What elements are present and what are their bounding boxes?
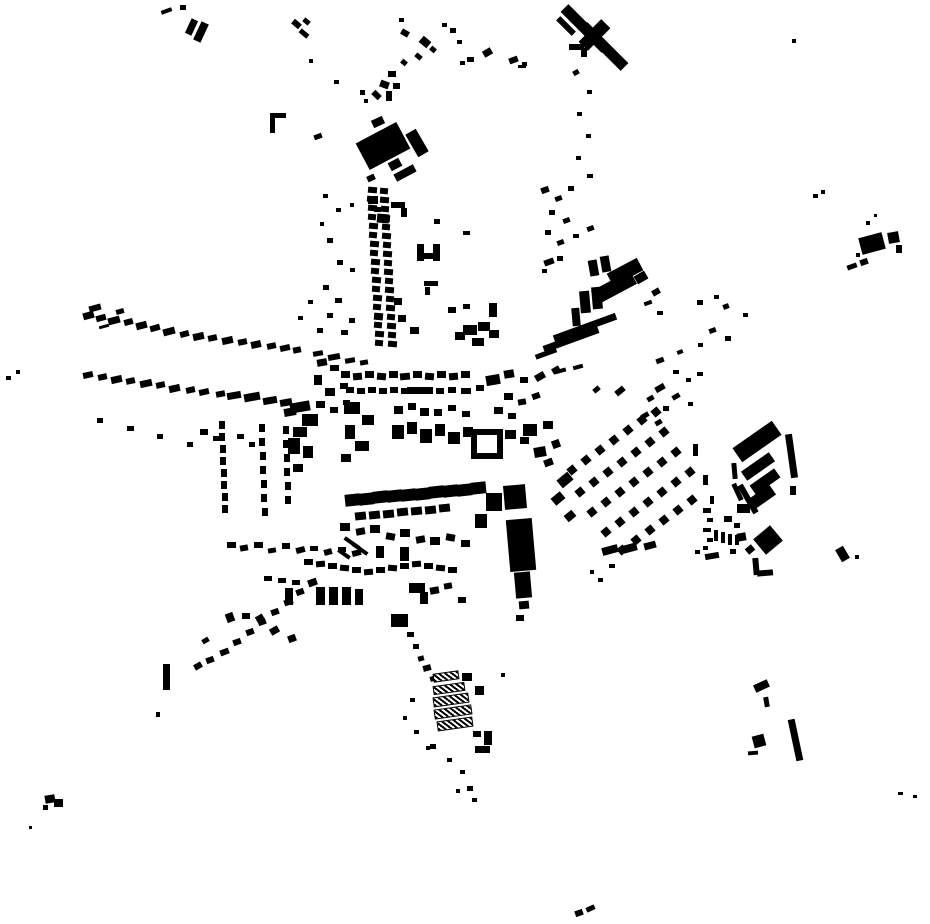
- building-footprint: [387, 565, 396, 572]
- building-footprint: [622, 542, 638, 553]
- building-footprint: [714, 295, 719, 299]
- building-footprint: [379, 197, 388, 204]
- building-footprint: [287, 633, 297, 642]
- building-footprint: [54, 799, 63, 807]
- building-footprint: [377, 213, 390, 223]
- building-footprint: [338, 547, 346, 552]
- building-footprint: [285, 482, 291, 490]
- building-footprint: [686, 378, 691, 382]
- building-footprint: [448, 387, 456, 393]
- building-footprint: [288, 438, 300, 454]
- building-footprint: [429, 45, 437, 53]
- building-footprint: [437, 371, 446, 378]
- building-footprint: [369, 232, 377, 239]
- building-footprint: [381, 233, 390, 240]
- building-footprint: [405, 129, 428, 158]
- building-footprint: [315, 561, 324, 568]
- building-footprint: [385, 305, 394, 312]
- building-footprint: [364, 99, 368, 103]
- building-footprint: [600, 496, 611, 507]
- building-footprint: [508, 413, 516, 419]
- building-footprint: [697, 372, 703, 376]
- building-footprint: [461, 388, 471, 394]
- building-footprint: [414, 730, 419, 734]
- building-footprint: [237, 338, 247, 346]
- building-footprint: [458, 597, 466, 603]
- building-footprint: [471, 429, 503, 459]
- building-footprint: [394, 298, 402, 305]
- building-footprint: [485, 374, 501, 386]
- building-footprint: [657, 311, 663, 315]
- building-footprint: [554, 194, 562, 201]
- building-footprint: [434, 671, 459, 681]
- building-footprint: [410, 327, 419, 334]
- building-footprint: [356, 122, 411, 170]
- building-footprint: [462, 411, 470, 417]
- building-footprint: [179, 330, 189, 338]
- building-footprint: [390, 387, 398, 393]
- building-footprint: [736, 532, 746, 541]
- building-footprint: [97, 373, 107, 381]
- building-footprint: [693, 444, 698, 456]
- building-footprint: [393, 83, 400, 89]
- building-footprint: [858, 232, 886, 255]
- building-footprint: [419, 36, 432, 49]
- building-footprint: [381, 206, 389, 213]
- building-footprint: [651, 287, 661, 296]
- building-footprint: [475, 686, 484, 695]
- building-footprint: [327, 313, 333, 318]
- building-footprint: [614, 486, 625, 497]
- building-footprint: [448, 372, 458, 380]
- building-footprint: [198, 388, 209, 396]
- building-footprint: [413, 371, 422, 378]
- building-footprint: [445, 533, 455, 541]
- building-footprint: [302, 414, 318, 426]
- building-footprint: [340, 523, 350, 531]
- building-footprint: [316, 401, 325, 408]
- building-footprint: [601, 544, 619, 556]
- building-footprint: [586, 506, 597, 517]
- building-footprint: [400, 372, 411, 380]
- building-footprint: [245, 628, 255, 636]
- building-footprint: [192, 331, 204, 340]
- building-footprint: [520, 377, 528, 383]
- building-footprint: [887, 231, 900, 244]
- building-footprint: [385, 532, 395, 540]
- building-footprint: [422, 664, 431, 672]
- building-footprint: [242, 613, 250, 619]
- building-footprint: [714, 530, 718, 541]
- building-footprint: [284, 454, 290, 462]
- building-footprint: [341, 330, 348, 335]
- building-footprint: [207, 334, 217, 342]
- building-footprint: [516, 615, 524, 621]
- building-footprint: [367, 205, 376, 212]
- building-footprint: [787, 719, 803, 762]
- building-footprint: [400, 547, 409, 561]
- building-footprint: [352, 372, 362, 380]
- building-footprint: [522, 62, 527, 66]
- building-footprint: [686, 494, 697, 505]
- building-footprint: [232, 638, 242, 646]
- building-footprint: [592, 385, 601, 393]
- building-footprint: [201, 636, 210, 644]
- building-footprint: [725, 336, 731, 341]
- building-footprint: [344, 402, 360, 414]
- building-footprint: [856, 253, 860, 257]
- building-footprint: [429, 586, 439, 594]
- building-footprint: [424, 563, 433, 569]
- building-footprint: [264, 576, 272, 581]
- building-footprint: [505, 430, 516, 439]
- building-footprint: [371, 277, 380, 284]
- building-footprint: [574, 909, 584, 917]
- building-footprint: [193, 661, 203, 670]
- building-footprint: [379, 79, 390, 89]
- building-footprint: [382, 509, 394, 518]
- building-footprint: [386, 91, 392, 101]
- building-footprint: [384, 287, 393, 294]
- building-footprint: [846, 262, 857, 270]
- building-footprint: [737, 504, 750, 513]
- building-footprint: [243, 392, 260, 403]
- building-footprint: [456, 789, 460, 793]
- building-footprint: [360, 90, 365, 95]
- building-footprint: [543, 257, 554, 266]
- building-footprint: [571, 308, 581, 327]
- building-footprint: [732, 420, 781, 461]
- building-footprint: [475, 746, 490, 753]
- building-footprint: [386, 323, 395, 330]
- building-footprint: [329, 587, 338, 605]
- building-footprint: [602, 466, 613, 477]
- building-footprint: [372, 295, 381, 302]
- building-footprint: [622, 424, 633, 435]
- building-footprint: [367, 187, 376, 194]
- building-footprint: [379, 388, 387, 394]
- building-footprint: [400, 563, 409, 569]
- building-footprint: [551, 491, 566, 506]
- building-footprint: [481, 47, 492, 58]
- building-footprint: [270, 116, 275, 133]
- building-footprint: [821, 190, 825, 194]
- building-footprint: [398, 315, 406, 322]
- building-footprint: [467, 57, 474, 62]
- building-footprint: [688, 402, 693, 406]
- building-footprint: [734, 523, 740, 528]
- building-footprint: [444, 582, 453, 589]
- building-footprint: [628, 506, 639, 517]
- building-footprint: [82, 371, 93, 379]
- building-footprint: [434, 409, 442, 416]
- building-footprint: [630, 446, 641, 457]
- building-footprint: [501, 673, 505, 677]
- building-footprint: [585, 904, 595, 912]
- building-footprint: [472, 798, 477, 802]
- building-footprint: [320, 222, 324, 226]
- building-footprint: [707, 538, 713, 542]
- building-footprint: [644, 524, 655, 535]
- building-footprint: [608, 434, 619, 445]
- building-footprint: [410, 698, 415, 702]
- building-footprint: [341, 371, 350, 378]
- building-footprint: [591, 287, 603, 310]
- building-footprint: [115, 308, 124, 315]
- building-footprint: [110, 374, 122, 383]
- building-footprint: [295, 546, 305, 554]
- building-footprint: [461, 540, 470, 547]
- building-footprint: [268, 547, 277, 553]
- building-footprint: [368, 223, 377, 230]
- building-footprint: [160, 7, 172, 15]
- building-footprint: [594, 444, 605, 455]
- building-footprint: [752, 734, 767, 749]
- building-footprint: [703, 546, 708, 550]
- building-footprint: [157, 434, 163, 439]
- building-footprint: [731, 463, 737, 479]
- building-footprint: [599, 255, 611, 272]
- building-footprint: [663, 406, 669, 411]
- building-footprint: [127, 426, 134, 431]
- building-footprint: [448, 405, 456, 411]
- building-footprint: [670, 476, 681, 487]
- building-footprint: [367, 196, 375, 203]
- building-footprint: [327, 238, 333, 243]
- building-footprint: [790, 486, 796, 495]
- building-footprint: [341, 454, 351, 462]
- building-footprint: [514, 571, 532, 598]
- building-footprint: [408, 403, 416, 410]
- building-footprint: [644, 300, 653, 306]
- building-footprint: [283, 440, 289, 448]
- building-footprint: [545, 230, 551, 235]
- building-footprint: [220, 457, 226, 465]
- building-footprint: [531, 392, 541, 400]
- building-footprint: [95, 314, 106, 322]
- building-footprint: [426, 746, 430, 750]
- building-footprint: [417, 655, 424, 661]
- building-footprint: [213, 436, 220, 441]
- buildings-layer: [0, 0, 930, 924]
- building-footprint: [705, 552, 720, 560]
- building-footprint: [579, 291, 591, 314]
- building-footprint: [283, 407, 296, 417]
- building-footprint: [695, 550, 700, 554]
- building-footprint: [316, 587, 325, 605]
- building-footprint: [16, 370, 20, 374]
- building-footprint: [219, 421, 225, 429]
- building-footprint: [590, 570, 594, 574]
- building-footprint: [254, 542, 263, 548]
- building-footprint: [337, 260, 343, 265]
- building-footprint: [672, 504, 683, 515]
- building-footprint: [435, 706, 472, 719]
- building-footprint: [407, 387, 433, 394]
- building-footprint: [268, 625, 279, 636]
- building-footprint: [266, 342, 276, 350]
- building-footprint: [434, 219, 440, 224]
- building-footprint: [436, 388, 444, 394]
- building-footprint: [355, 589, 363, 605]
- building-footprint: [410, 506, 422, 515]
- building-footprint: [200, 429, 208, 435]
- building-footprint: [163, 664, 170, 690]
- building-footprint: [654, 418, 663, 426]
- building-footprint: [400, 28, 410, 37]
- building-footprint: [328, 563, 337, 569]
- building-footprint: [260, 452, 266, 460]
- building-footprint: [430, 537, 440, 545]
- building-footprint: [616, 456, 627, 467]
- building-footprint: [219, 648, 230, 657]
- building-footprint: [745, 544, 756, 555]
- building-footprint: [411, 561, 420, 568]
- building-footprint: [387, 314, 395, 321]
- building-footprint: [724, 516, 732, 522]
- building-footprint: [448, 307, 456, 313]
- building-footprint: [375, 340, 383, 347]
- building-footprint: [295, 588, 305, 596]
- building-footprint: [646, 394, 655, 402]
- building-footprint: [518, 398, 527, 405]
- building-footprint: [291, 19, 302, 29]
- building-footprint: [433, 244, 440, 261]
- figure-ground-map: [0, 0, 930, 924]
- building-footprint: [391, 614, 408, 627]
- building-footprint: [813, 194, 818, 198]
- building-footprint: [506, 518, 536, 572]
- building-footprint: [307, 577, 318, 587]
- building-footprint: [302, 17, 311, 25]
- building-footprint: [376, 372, 386, 380]
- building-footprint: [707, 518, 713, 522]
- building-footprint: [721, 532, 725, 543]
- building-footprint: [293, 464, 303, 472]
- building-footprint: [874, 214, 877, 217]
- building-footprint: [362, 415, 374, 425]
- building-footprint: [226, 390, 241, 399]
- building-footprint: [473, 731, 481, 737]
- building-footprint: [371, 116, 385, 128]
- building-footprint: [489, 330, 499, 338]
- building-footprint: [342, 587, 351, 605]
- building-footprint: [463, 231, 470, 235]
- building-footprint: [753, 525, 783, 554]
- building-footprint: [371, 268, 379, 275]
- building-footprint: [261, 494, 267, 502]
- building-footprint: [614, 385, 626, 396]
- building-footprint: [336, 208, 341, 212]
- building-footprint: [855, 555, 859, 559]
- building-footprint: [349, 318, 355, 323]
- building-footprint: [461, 371, 470, 378]
- building-footprint: [250, 340, 261, 349]
- building-footprint: [293, 427, 307, 437]
- building-footprint: [859, 258, 869, 266]
- building-footprint: [420, 592, 428, 604]
- building-footprint: [278, 578, 286, 583]
- building-footprint: [642, 466, 653, 477]
- building-footprint: [259, 438, 265, 446]
- building-footprint: [330, 407, 338, 413]
- building-footprint: [564, 510, 577, 523]
- building-footprint: [149, 324, 160, 332]
- building-footprint: [313, 350, 324, 357]
- building-footprint: [684, 466, 695, 477]
- building-footprint: [282, 543, 290, 549]
- building-footprint: [366, 174, 376, 183]
- building-footprint: [373, 312, 383, 320]
- building-footprint: [534, 370, 546, 381]
- building-footprint: [472, 338, 484, 346]
- building-footprint: [222, 505, 228, 513]
- building-footprint: [703, 508, 711, 513]
- building-footprint: [424, 505, 436, 514]
- building-footprint: [450, 28, 456, 33]
- building-footprint: [587, 259, 599, 276]
- building-footprint: [262, 508, 268, 516]
- building-footprint: [643, 540, 656, 550]
- building-footprint: [489, 303, 497, 317]
- building-footprint: [438, 718, 473, 731]
- building-footprint: [187, 442, 193, 447]
- building-footprint: [382, 251, 391, 258]
- building-footprint: [586, 134, 591, 138]
- building-footprint: [358, 492, 374, 506]
- building-footprint: [587, 90, 592, 94]
- building-footprint: [673, 370, 679, 374]
- building-footprint: [368, 214, 376, 221]
- building-footprint: [385, 278, 393, 285]
- building-footprint: [388, 71, 396, 77]
- building-footprint: [222, 493, 228, 501]
- building-footprint: [573, 234, 579, 238]
- building-footprint: [168, 383, 180, 392]
- building-footprint: [763, 697, 770, 708]
- building-footprint: [162, 326, 175, 336]
- building-footprint: [420, 429, 432, 443]
- building-footprint: [221, 481, 227, 489]
- building-footprint: [542, 269, 547, 273]
- building-footprint: [540, 186, 550, 194]
- building-footprint: [598, 578, 603, 582]
- building-footprint: [407, 422, 417, 434]
- building-footprint: [304, 559, 313, 565]
- building-footprint: [415, 535, 425, 543]
- building-footprint: [728, 534, 732, 545]
- building-footprint: [898, 792, 903, 795]
- building-footprint: [543, 421, 553, 429]
- building-footprint: [334, 80, 339, 84]
- building-footprint: [656, 456, 667, 467]
- building-footprint: [533, 446, 547, 458]
- building-footprint: [388, 332, 396, 339]
- building-footprint: [240, 544, 249, 551]
- building-footprint: [310, 546, 318, 551]
- building-footprint: [588, 476, 599, 487]
- building-footprint: [368, 510, 380, 519]
- building-footprint: [543, 457, 554, 467]
- building-footprint: [414, 52, 423, 60]
- building-footprint: [372, 286, 380, 293]
- building-footprint: [399, 18, 404, 22]
- building-footprint: [654, 383, 666, 393]
- building-footprint: [609, 564, 615, 568]
- building-footprint: [376, 567, 385, 573]
- building-footprint: [369, 241, 378, 248]
- building-footprint: [434, 682, 465, 693]
